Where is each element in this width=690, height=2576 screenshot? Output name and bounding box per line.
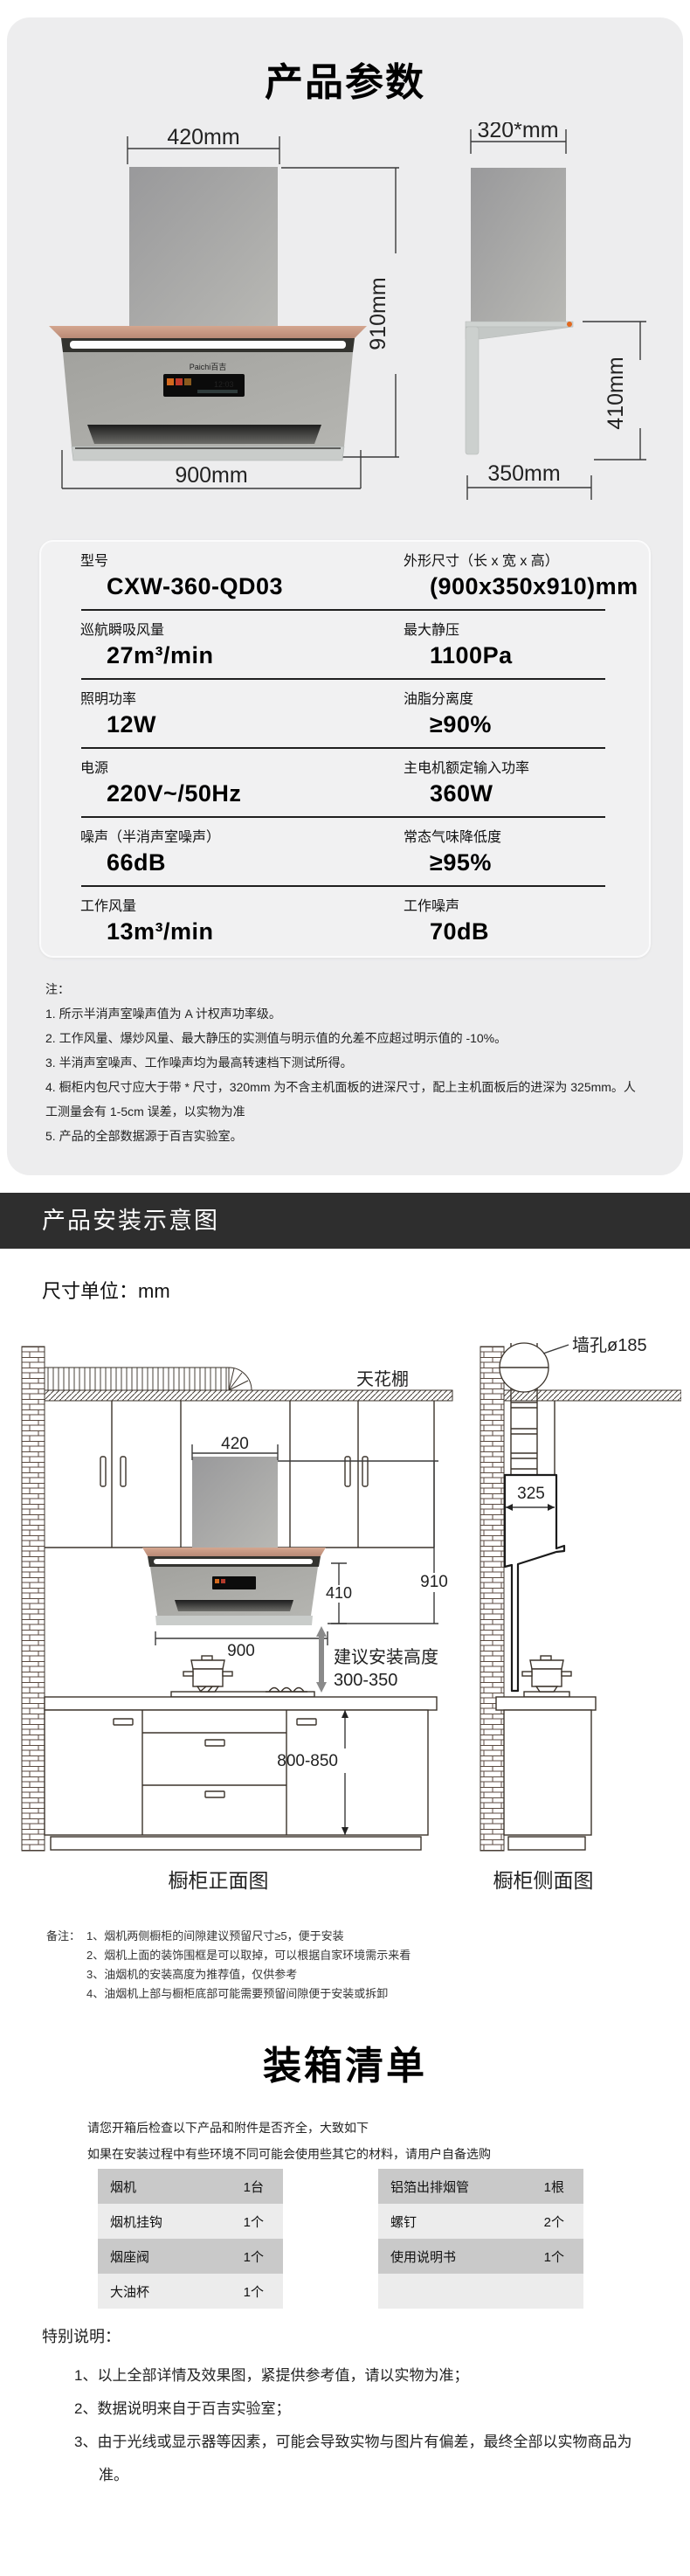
spec-row: 电源220V~/50Hz 主电机额定输入功率360W [41,749,649,816]
remark-line: 2、烟机上面的装饰围框是可以取掉，可以根据自家环境需示来看 [86,1946,411,1965]
install-remarks: 备注： 1、烟机两侧橱柜的间隙建议预留尺寸≥5，便于安装 2、烟机上面的装饰围框… [46,1927,658,2004]
special-note-line: 1、以上全部详情及效果图，紧提供参考值，请以实物为准； [74,2359,642,2392]
ceiling-label: 天花棚 [356,1369,409,1389]
spec-value: 220V~/50Hz [80,780,404,807]
wall-hole-label: 墙孔ø185 [572,1335,647,1355]
install-height-label: 建议安装高度 [334,1647,438,1667]
front-view-hood: 420mm 910mm Paichi百吉 12:03 900mm [49,125,399,488]
spec-row: 巡航瞬吸风量27m³/min 最大静压1100Pa [41,611,649,678]
note-line: 2. 工作风量、爆炒风量、最大静压的实测值与明示值的允差不应超过明示值的 -10… [45,1026,639,1050]
front-height-dim: 910mm [366,277,390,350]
spec-label: 巡航瞬吸风量 [80,618,404,639]
item-qty: 1个 [244,2282,264,2301]
spec-table: 型号CXW-360-QD03 外形尺寸（长 x 宽 x 高）(900x350x9… [39,540,651,958]
spec-row: 照明功率12W 油脂分离度≥90% [41,680,649,747]
item-qty: 1个 [244,2212,264,2231]
chimney-width-dim: 420 [221,1435,249,1453]
screen-clock: 12:03 [214,380,234,389]
packing-table-left: 烟机1台 烟机挂钩1个 烟座阀1个 大油杯1个 [98,2169,283,2309]
spec-value: 360W [404,780,649,807]
note-line: 1. 所示半消声室噪声值为 A 计权声功率级。 [45,1001,639,1026]
table-row: 烟座阀1个 [98,2239,283,2274]
table-row: 大油杯1个 [98,2274,283,2309]
spec-label: 工作风量 [80,894,404,915]
spec-label: 外形尺寸（长 x 宽 x 高） [404,549,649,570]
cabinet-side-view: 墙孔ø185 325 橱柜侧面图 [480,1335,681,1892]
front-view-caption: 橱柜正面图 [169,1869,269,1892]
installation-diagram: 天花棚 420 910 410 [9,1315,681,1918]
remark-line: 1、烟机两侧橱柜的间隙建议预留尺寸≥5，便于安装 [86,1927,411,1946]
item-qty: 1个 [244,2247,264,2266]
spec-label: 噪声（半消声室噪声） [80,825,404,846]
side-view-caption: 橱柜侧面图 [493,1869,594,1892]
notes-title: 注： [45,977,639,1001]
table-row: 烟机1台 [98,2169,283,2204]
install-section-banner: 产品安装示意图 [0,1193,690,1249]
product-dimension-diagrams: 420mm 910mm Paichi百吉 12:03 900mm 320*mm [0,122,690,524]
packing-table-right: 铝箔出排烟管1根 螺钉2个 使用说明书1个 [378,2169,583,2309]
item-name: 烟机挂钩 [110,2212,162,2231]
packing-intro-line: 如果在安装过程中有些环境不同可能会使用些其它的材料，请用户自备选购 [87,2141,629,2167]
table-row [378,2274,583,2309]
install-height-range: 300-350 [334,1671,397,1690]
packing-list-title: 装箱清单 [0,2034,690,2090]
hood-width-dim: 900 [227,1642,255,1660]
dimension-unit-label: 尺寸单位：mm [42,1276,170,1304]
remark-line: 3、油烟机的安装高度为推荐值，仅供参考 [86,1965,411,1984]
table-row: 使用说明书1个 [378,2239,583,2274]
table-row: 烟机挂钩1个 [98,2204,283,2239]
spec-value: CXW-360-QD03 [80,573,404,600]
item-name: 铝箔出排烟管 [390,2178,469,2196]
special-note-line: 3、由于光线或显示器等因素，可能会导致实物与图片有偏差，最终全部以实物商品为准。 [74,2426,642,2492]
side-accent-dot [567,322,572,327]
table-row: 螺钉2个 [378,2204,583,2239]
remark-line: 4、油烟机上部与橱柜底部可能需要预留间隙便于安装或拆卸 [86,1984,411,2004]
params-section-title: 产品参数 [0,51,690,107]
hood-height-dim: 910 [420,1573,448,1591]
special-note-line: 2、数据说明来自于百吉实验室； [74,2392,642,2426]
item-qty: 2个 [544,2212,564,2231]
item-qty: 1个 [544,2247,564,2266]
remarks-label: 备注： [46,1927,86,2004]
side-view-hood: 320*mm 410mm 350mm [466,122,646,500]
spec-value: 27m³/min [80,642,404,669]
note-line: 3. 半消声室噪声、工作噪声均为最高转速档下测试所得。 [45,1050,639,1075]
product-detail-page: 产品参数 420mm 910mm Paichi百吉 12:03 [0,0,690,2576]
note-line: 5. 产品的全部数据源于百吉实验室。 [45,1124,639,1148]
item-qty: 1根 [544,2178,564,2196]
side-height-dim: 410mm [604,357,628,429]
front-width-dim: 420mm [167,125,239,149]
front-bottom-width-dim: 900mm [175,463,247,488]
spec-value: 12W [80,711,404,738]
spec-label: 型号 [80,549,404,570]
spec-value: (900x350x910)mm [404,573,649,600]
packing-intro: 请您开箱后检查以下产品和附件是否齐全，大致如下 如果在安装过程中有些环境不同可能… [87,2115,629,2167]
spec-value: 1100Pa [404,642,649,669]
spec-row: 型号CXW-360-QD03 外形尺寸（长 x 宽 x 高）(900x350x9… [41,542,649,609]
spec-row: 工作风量13m³/min 工作噪声70dB [41,887,649,954]
table-row: 铝箔出排烟管1根 [378,2169,583,2204]
spec-value: ≥95% [404,849,649,876]
spec-label: 照明功率 [80,687,404,708]
spec-label: 电源 [80,756,404,777]
spec-label: 工作噪声 [404,894,649,915]
spec-value: 13m³/min [80,918,404,945]
spec-label: 常态气味降低度 [404,825,649,846]
special-notes: 1、以上全部详情及效果图，紧提供参考值，请以实物为准； 2、数据说明来自于百吉实… [74,2359,642,2492]
item-name: 烟机 [110,2178,136,2196]
note-line: 4. 橱柜内包尺寸应大于带 * 尺寸，320mm 为不含主机面板的进深尺寸，配上… [45,1075,639,1124]
cabinet-front-view: 天花棚 420 910 410 [22,1347,452,1892]
spec-value: 70dB [404,918,649,945]
hood-body-height-dim: 410 [326,1584,352,1602]
spec-value: 66dB [80,849,404,876]
spec-notes: 注： 1. 所示半消声室噪声值为 A 计权声功率级。 2. 工作风量、爆炒风量、… [45,977,639,1148]
item-name: 大油杯 [110,2282,149,2301]
side-bottom-depth-dim: 350mm [487,461,560,486]
spec-label: 油脂分离度 [404,687,649,708]
hood-depth-dim: 325 [517,1485,545,1503]
spec-row: 噪声（半消声室噪声）66dB 常态气味降低度≥95% [41,818,649,885]
packing-intro-line: 请您开箱后检查以下产品和附件是否齐全，大致如下 [87,2115,629,2141]
brand-logo-text: Paichi百吉 [190,363,227,371]
spec-label: 最大静压 [404,618,649,639]
item-name: 使用说明书 [390,2247,456,2266]
special-notes-label: 特别说明： [42,2324,121,2347]
side-depth-dim: 320*mm [477,122,558,142]
item-qty: 1台 [244,2178,264,2196]
spec-value: ≥90% [404,711,649,738]
item-name: 烟座阀 [110,2247,149,2266]
item-name: 螺钉 [390,2212,417,2231]
spec-label: 主电机额定输入功率 [404,756,649,777]
counter-height-dim: 800-850 [277,1752,338,1770]
